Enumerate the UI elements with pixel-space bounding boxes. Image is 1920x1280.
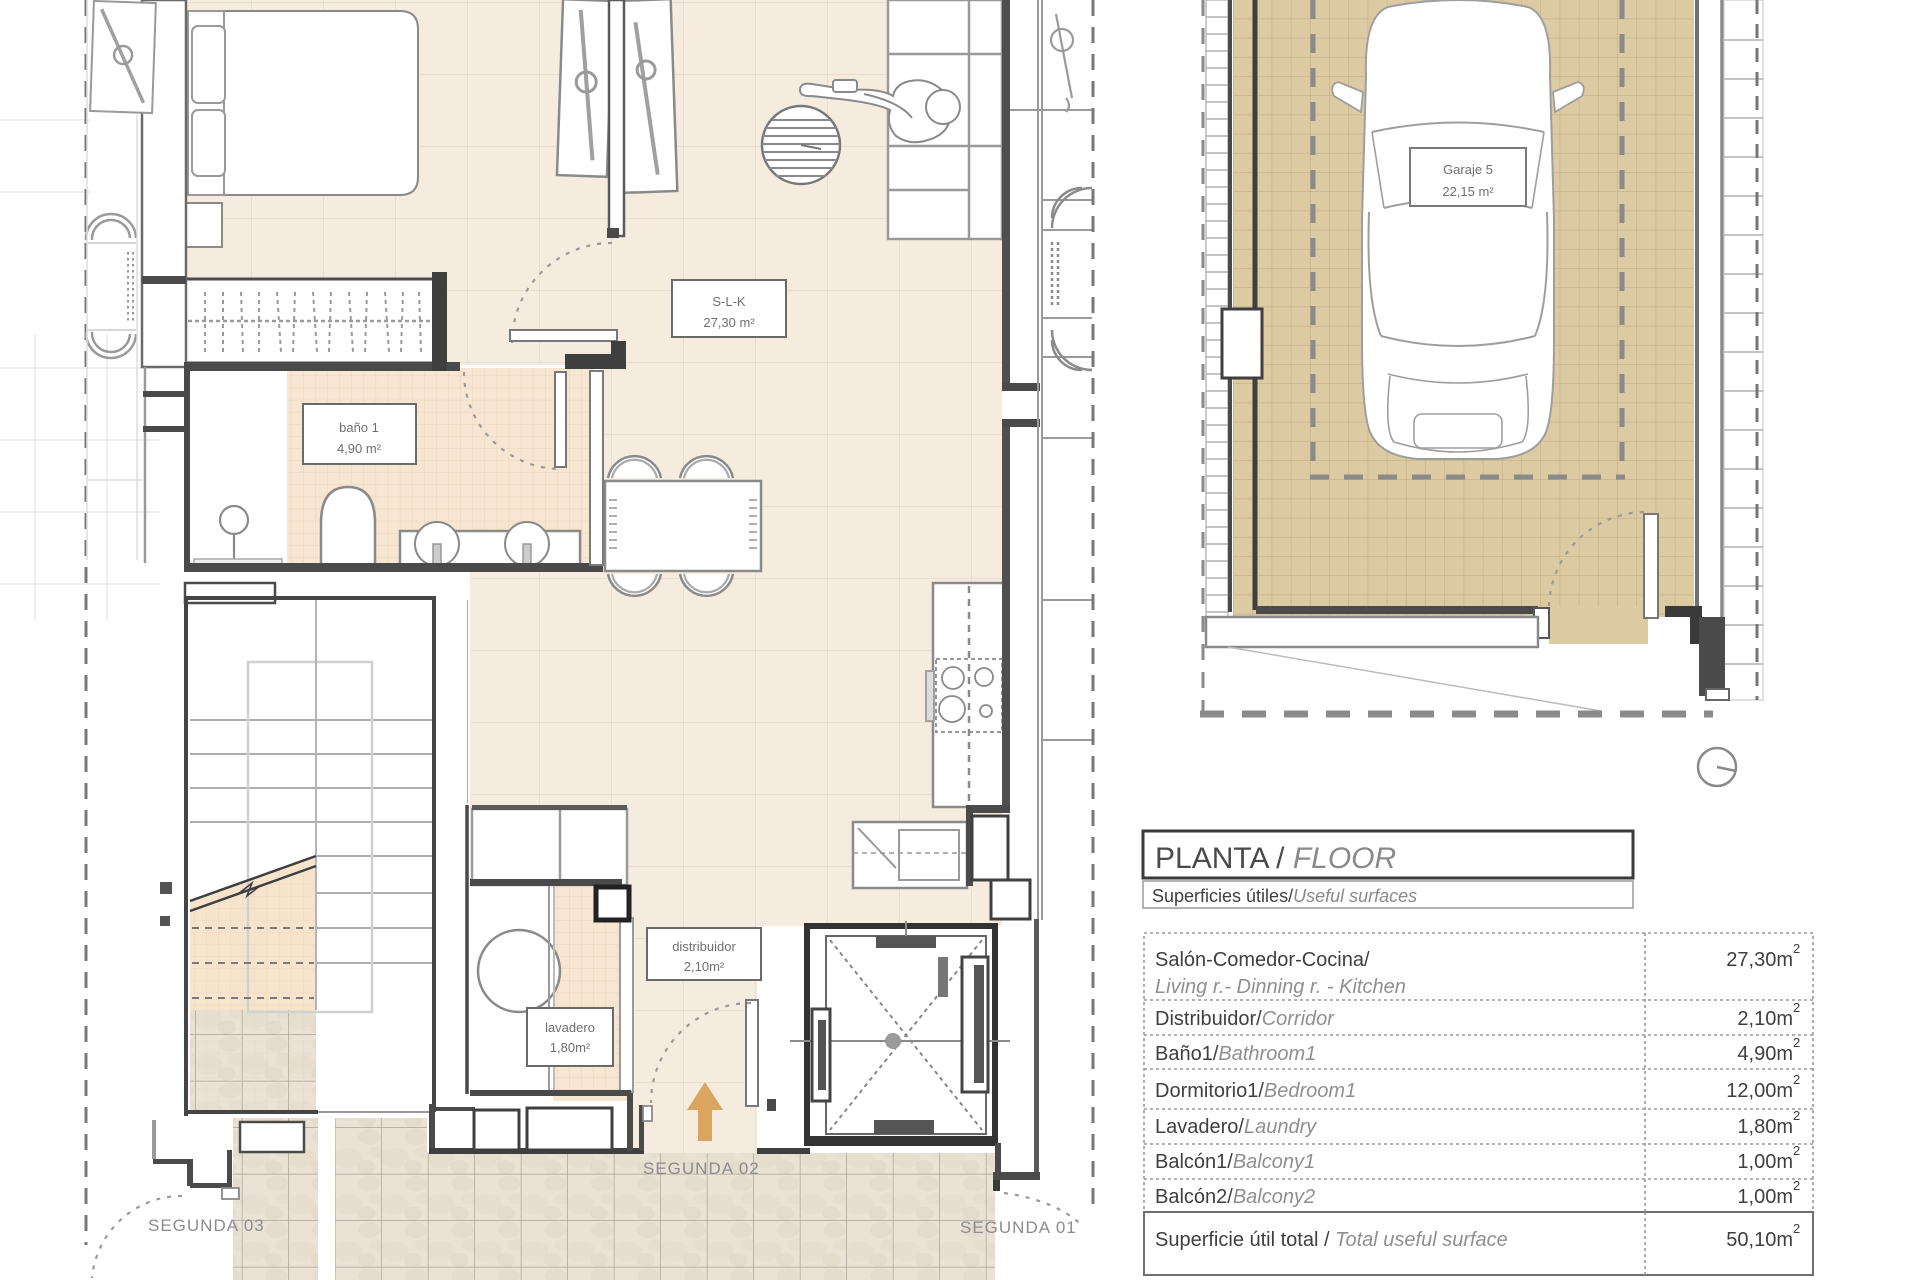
svg-text:Living r.- Dinning r. - Kitche: Living r.- Dinning r. - Kitchen <box>1155 976 1406 998</box>
svg-text:Dormitorio1/Bedroom1: Dormitorio1/Bedroom1 <box>1155 1080 1356 1102</box>
svg-text:2: 2 <box>1793 1072 1800 1087</box>
svg-text:SEGUNDA 02: SEGUNDA 02 <box>643 1159 760 1178</box>
svg-text:Distribuidor/Corridor: Distribuidor/Corridor <box>1155 1008 1335 1030</box>
svg-text:50,10m: 50,10m <box>1726 1229 1793 1251</box>
svg-text:2: 2 <box>1793 1178 1800 1193</box>
svg-text:2,10m²: 2,10m² <box>684 959 725 974</box>
svg-text:2: 2 <box>1793 1035 1800 1050</box>
svg-text:27,30 m²: 27,30 m² <box>703 315 755 330</box>
svg-text:distribuidor: distribuidor <box>672 939 736 954</box>
svg-text:2: 2 <box>1793 1108 1800 1123</box>
svg-text:SEGUNDA 01: SEGUNDA 01 <box>960 1218 1077 1237</box>
svg-text:2: 2 <box>1793 1000 1800 1015</box>
svg-text:Lavadero/Laundry: Lavadero/Laundry <box>1155 1116 1317 1138</box>
svg-text:4,90m: 4,90m <box>1737 1043 1793 1065</box>
svg-text:S-L-K: S-L-K <box>712 294 746 309</box>
svg-text:1,00m: 1,00m <box>1737 1151 1793 1173</box>
svg-text:SEGUNDA 03: SEGUNDA 03 <box>148 1216 265 1235</box>
svg-text:Balcón2/Balcony2: Balcón2/Balcony2 <box>1155 1186 1315 1208</box>
svg-text:22,15 m²: 22,15 m² <box>1442 184 1494 199</box>
svg-text:lavadero: lavadero <box>545 1020 595 1035</box>
svg-text:Baño1/Bathroom1: Baño1/Bathroom1 <box>1155 1043 1316 1065</box>
svg-text:1,80m²: 1,80m² <box>550 1040 591 1055</box>
svg-text:2: 2 <box>1793 1143 1800 1158</box>
svg-text:baño 1: baño 1 <box>339 420 379 435</box>
svg-text:2: 2 <box>1793 1221 1800 1236</box>
svg-text:Balcón1/Balcony1: Balcón1/Balcony1 <box>1155 1151 1315 1173</box>
svg-text:2,10m: 2,10m <box>1737 1008 1793 1030</box>
svg-text:Superficie útil total / Total: Superficie útil total / Total useful sur… <box>1155 1229 1508 1251</box>
svg-text:27,30m: 27,30m <box>1726 949 1793 971</box>
svg-text:Salón-Comedor-Cocina/: Salón-Comedor-Cocina/ <box>1155 949 1370 971</box>
svg-text:4,90 m²: 4,90 m² <box>337 441 382 456</box>
svg-text:12,00m: 12,00m <box>1726 1080 1793 1102</box>
svg-text:1,80m: 1,80m <box>1737 1116 1793 1138</box>
svg-text:2: 2 <box>1793 941 1800 956</box>
svg-text:PLANTA / FLOOR: PLANTA / FLOOR <box>1155 842 1396 875</box>
svg-text:Garaje 5: Garaje 5 <box>1443 162 1493 177</box>
svg-text:1,00m: 1,00m <box>1737 1186 1793 1208</box>
svg-text:Superficies útiles/Useful surf: Superficies útiles/Useful surfaces <box>1152 886 1417 906</box>
